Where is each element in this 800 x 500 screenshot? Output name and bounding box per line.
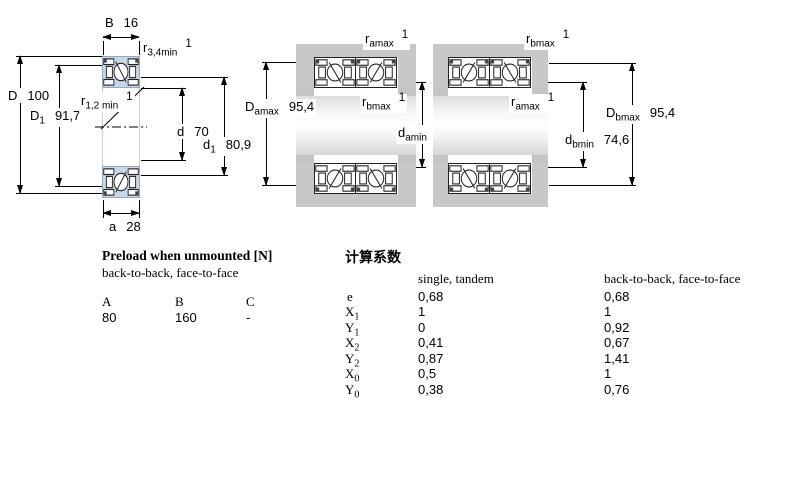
- factor-row-value1: 0,68: [418, 289, 443, 304]
- bearing-cell: [355, 57, 397, 88]
- housing-bar-bottom: [433, 194, 548, 207]
- preload-value-A: 80: [102, 310, 116, 325]
- bearing-glyph: [490, 164, 530, 193]
- factor-row-label: Y0: [345, 382, 359, 401]
- factor-row-value1: 1: [418, 304, 425, 319]
- bearing-section-bottom: [102, 166, 140, 198]
- bearing-cell: [314, 57, 356, 88]
- shaft-shoulder: [532, 155, 548, 163]
- preload-value-C: -: [246, 310, 250, 325]
- preload-table-subtitle: back-to-back, face-to-face: [102, 265, 238, 281]
- housing-shoulder: [398, 57, 416, 88]
- bearing-cell: [355, 163, 397, 194]
- bearing-glyph: [490, 58, 530, 87]
- preload-value-B: 160: [175, 310, 197, 325]
- factor-row-value2: 0,67: [604, 335, 629, 350]
- extension-line: [55, 65, 102, 66]
- shaft-shoulder: [398, 155, 416, 163]
- factor-row-value1: 0,5: [418, 366, 436, 381]
- arrangement-face-to-face: [433, 44, 548, 207]
- dim-label-r12: r1,2 min1: [79, 93, 135, 112]
- dim-label-d1: d180,9: [201, 137, 253, 156]
- dim-line-d1: [224, 77, 225, 175]
- dim-label-ramax: ramax1: [509, 94, 556, 113]
- housing-bar-bottom: [296, 194, 416, 207]
- factor-row-value2: 0,76: [604, 382, 629, 397]
- housing-shoulder: [532, 163, 548, 194]
- preload-table-title: Preload when unmounted [N]: [102, 248, 272, 264]
- bearing-cell: [489, 57, 531, 88]
- bearing-cell: [448, 163, 490, 194]
- shaft-shoulder: [433, 155, 448, 163]
- dim-line-a: [103, 213, 139, 214]
- bearing-glyph: [315, 164, 355, 193]
- factor-row-value2: 1,41: [604, 351, 629, 366]
- extension-line: [141, 77, 228, 78]
- factor-row-value2: 0,92: [604, 320, 629, 335]
- datasheet-page: B16 r3,4min1 D100 D191,7 r1,2 min1 d70 d…: [0, 0, 800, 500]
- factor-row-value1: 0,87: [418, 351, 443, 366]
- dim-label-rbmax: rbmax1: [524, 31, 571, 50]
- dim-label-Dbmax: Dbmax95,4: [604, 105, 677, 124]
- dim-label-dbmin: dbmin74,6: [563, 132, 631, 151]
- dim-label-r34: r3,4min1: [141, 40, 194, 59]
- housing-shoulder: [398, 163, 416, 194]
- preload-col-A: A: [102, 294, 111, 310]
- dim-line-dbmin: [583, 82, 584, 167]
- factor-row-value1: 0,38: [418, 382, 443, 397]
- dim-label-rbmax: rbmax1: [360, 94, 407, 113]
- bearing-glyph: [449, 164, 489, 193]
- bearing-glyph: [103, 167, 139, 197]
- housing-shoulder: [296, 163, 314, 194]
- bearing-cell: [489, 163, 531, 194]
- extension-line: [141, 175, 228, 176]
- factors-col1-header: single, tandem: [418, 271, 494, 287]
- factor-row-value2: 0,68: [604, 289, 629, 304]
- bearing-glyph: [356, 164, 396, 193]
- dim-label-Damax: Damax95,4: [243, 99, 316, 118]
- bearing-glyph: [103, 57, 139, 87]
- extension-line: [103, 41, 104, 55]
- housing-shoulder: [296, 57, 314, 88]
- dim-line-Dbmax: [632, 63, 633, 185]
- extension-line: [549, 63, 636, 64]
- dim-line-B: [103, 37, 139, 38]
- factor-row-value1: 0,41: [418, 335, 443, 350]
- shaft-shoulder: [296, 88, 314, 96]
- dim-label-a: a28: [107, 219, 143, 234]
- factors-table-title: 计算系数: [345, 247, 401, 267]
- dim-line-Damax: [266, 62, 267, 185]
- extension-line: [549, 185, 636, 186]
- factor-row-value1: 0: [418, 320, 425, 335]
- dim-label-ramax: ramax1: [363, 31, 410, 50]
- dim-line-D: [20, 56, 21, 193]
- preload-col-B: B: [175, 294, 184, 310]
- extension-line: [139, 41, 140, 55]
- factor-row-value2: 1: [604, 366, 611, 381]
- bearing-glyph: [449, 58, 489, 87]
- extension-line: [16, 193, 102, 194]
- bearing-cell: [314, 163, 356, 194]
- factor-row-value2: 1: [604, 304, 611, 319]
- extension-line: [55, 186, 102, 187]
- dim-label-D: D100: [6, 88, 51, 103]
- bearing-glyph: [315, 58, 355, 87]
- factors-col2-header: back-to-back, face-to-face: [604, 271, 740, 287]
- shaft-shoulder: [433, 88, 448, 96]
- preload-col-C: C: [246, 294, 255, 310]
- bearing-cell: [448, 57, 490, 88]
- extension-line: [16, 56, 102, 57]
- shaft-shoulder: [296, 155, 314, 163]
- housing-shoulder: [433, 163, 448, 194]
- housing-shoulder: [433, 57, 448, 88]
- dim-label-B: B16: [103, 15, 140, 30]
- housing-shoulder: [532, 57, 548, 88]
- bearing-glyph: [356, 58, 396, 87]
- dim-label-D1: D191,7: [28, 108, 82, 127]
